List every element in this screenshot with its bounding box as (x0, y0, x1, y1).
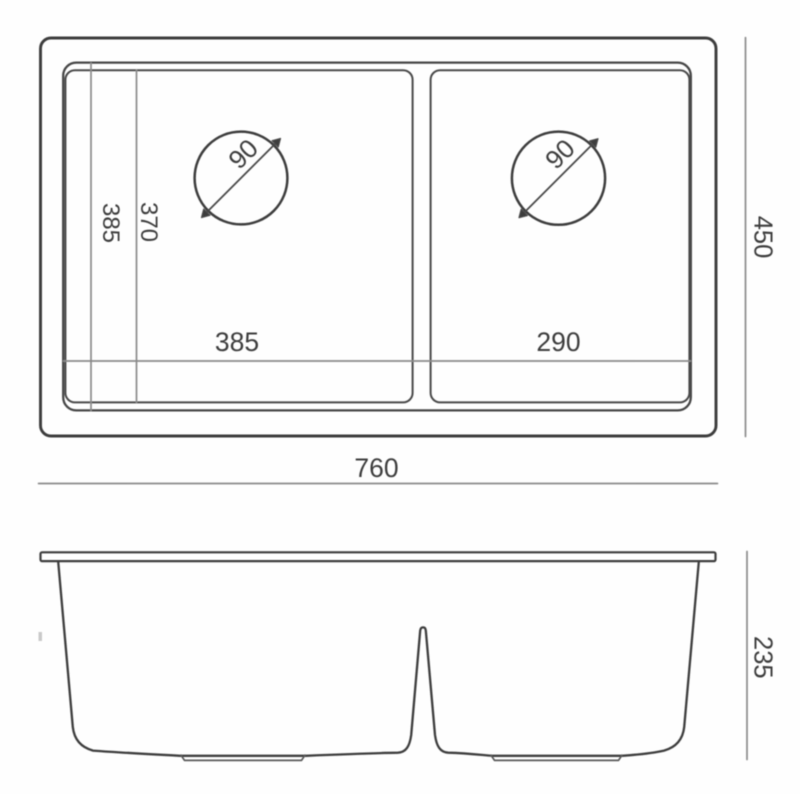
svg-text:235: 235 (749, 636, 777, 679)
svg-text:385: 385 (215, 327, 259, 357)
svg-text:450: 450 (748, 216, 776, 259)
svg-text:370: 370 (135, 202, 162, 242)
svg-text:760: 760 (354, 453, 398, 483)
svg-text:385: 385 (97, 203, 124, 243)
svg-text:90: 90 (539, 133, 581, 175)
svg-text:90: 90 (222, 133, 264, 175)
svg-text:290: 290 (536, 327, 580, 357)
